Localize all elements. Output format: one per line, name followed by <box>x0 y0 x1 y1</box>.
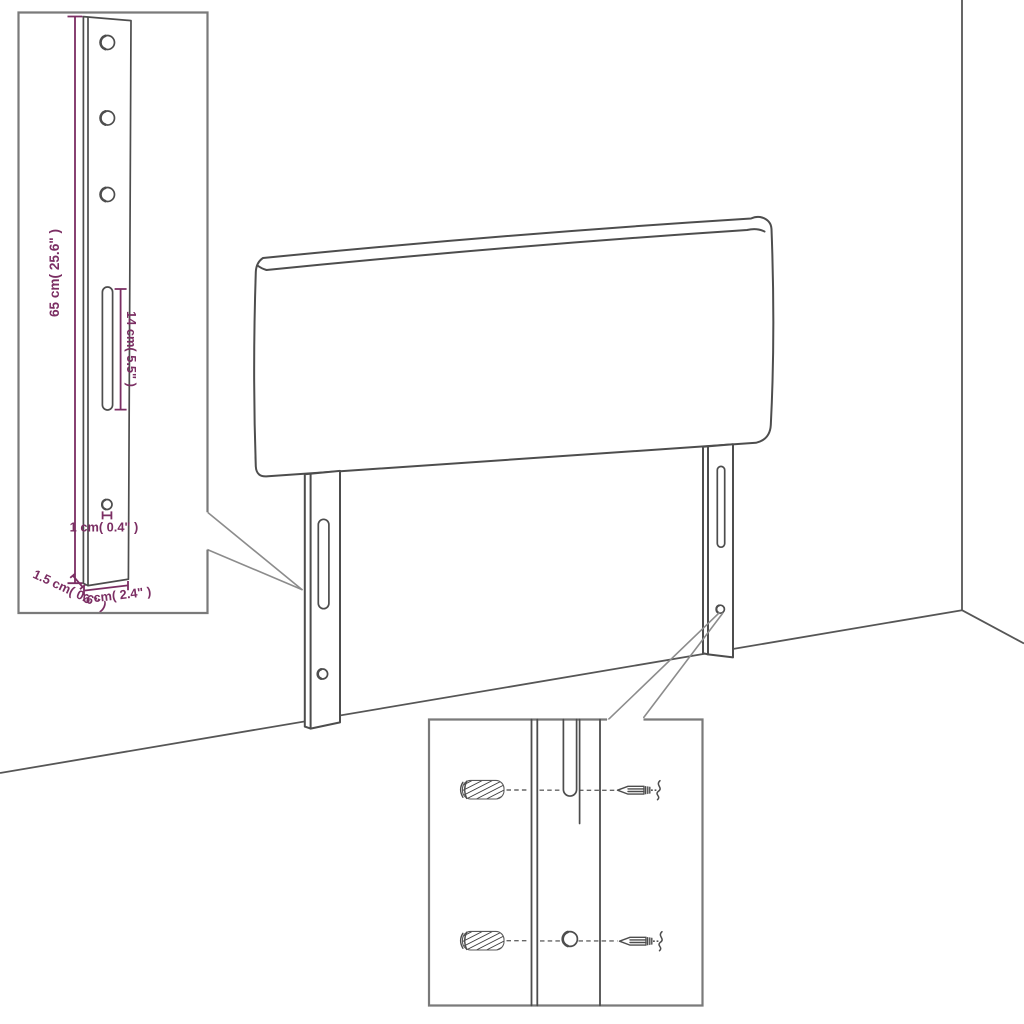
diagram-svg: 65 cm( 25.6" ) 14 cm( 5.5" ) 1 cm( 0.4" … <box>0 0 1024 1024</box>
leg-height-label: 65 cm( 25.6" ) <box>47 229 62 317</box>
leg-inset-callout-lines <box>208 512 303 589</box>
leg-dimension-inset: 65 cm( 25.6" ) 14 cm( 5.5" ) 1 cm( 0.4" … <box>19 13 208 614</box>
wall-plug-top-icon <box>461 780 504 799</box>
wall-plug-bottom-icon <box>461 931 504 950</box>
slot-length-label: 14 cm( 5.5" ) <box>124 311 139 387</box>
headboard-right-leg <box>703 444 733 657</box>
headboard-left-leg <box>305 471 340 729</box>
hole-diameter-label: 1 cm( 0.4" ) <box>70 520 139 535</box>
hardware-detail-inset <box>429 720 703 1006</box>
headboard-panel-outline <box>254 217 773 477</box>
headboard-assembly-diagram: 65 cm( 25.6" ) 14 cm( 5.5" ) 1 cm( 0.4" … <box>0 0 1024 1024</box>
headboard-panel <box>254 217 773 477</box>
floor-line-right <box>962 610 1024 643</box>
